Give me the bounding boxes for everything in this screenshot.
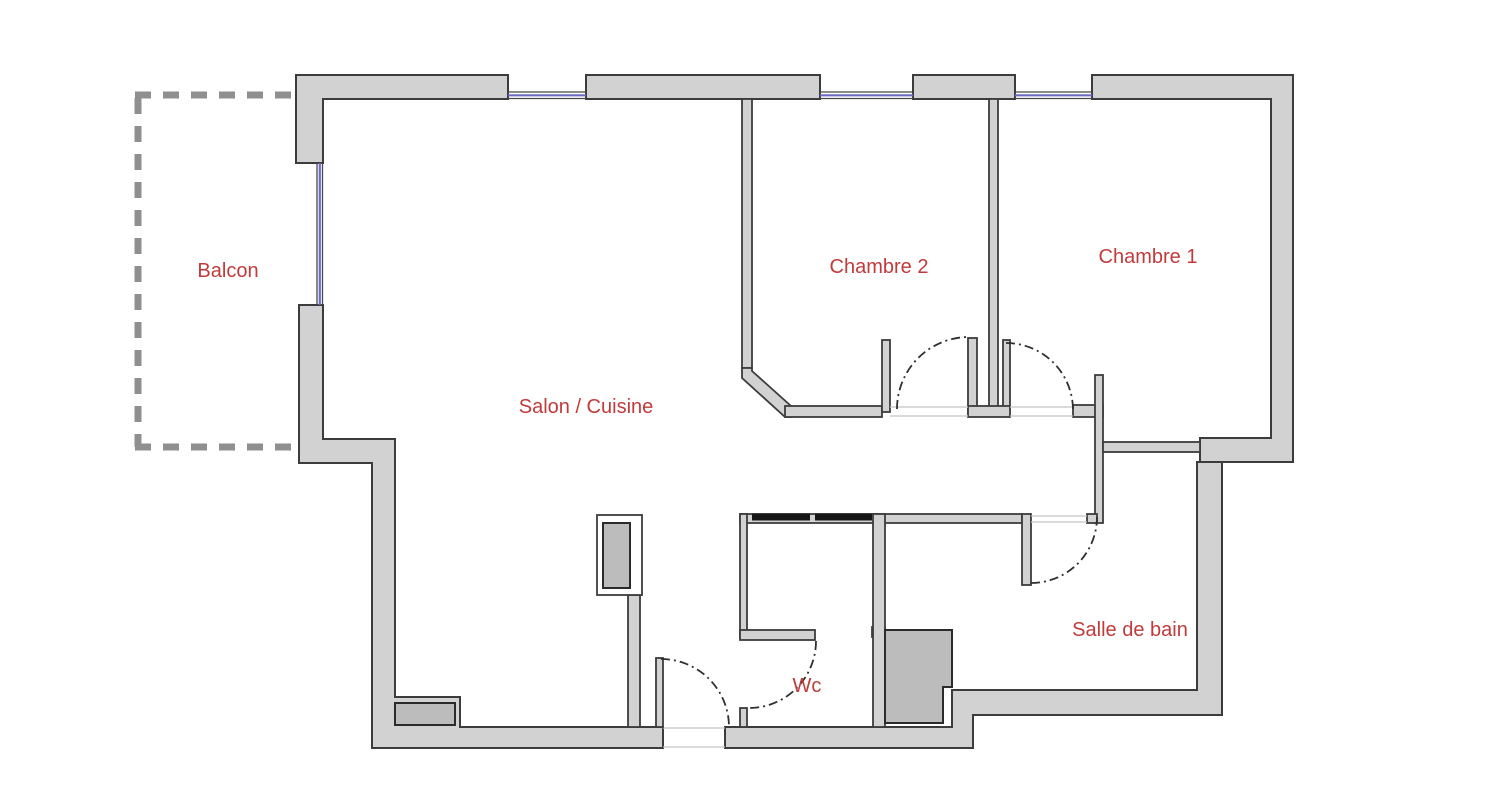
door-jamb-chambre2 — [968, 338, 977, 413]
room-label-wc: Wc — [793, 675, 822, 697]
window-balcony-left — [317, 163, 323, 305]
room-label-chambre-1: Chambre 1 — [1099, 246, 1198, 268]
fixtures — [395, 515, 952, 725]
window-chambre2-top — [820, 92, 913, 99]
door-arc-chambre1 — [1006, 343, 1073, 410]
outer-wall-top-right-section — [1092, 75, 1293, 462]
room-label-balcon: Balcon — [197, 260, 258, 282]
room-label-salon-cuisine: Salon / Cuisine — [519, 396, 654, 418]
wall-wc-inner — [740, 630, 815, 640]
wall-below-pillar — [628, 595, 640, 727]
outer-wall-top-pier-3 — [913, 75, 1015, 99]
wall-chambres-bottom-center — [968, 406, 1010, 417]
wall-salon-chambre2-angled — [742, 368, 791, 417]
radiator — [395, 703, 455, 725]
door-leaf-chambre1 — [1003, 340, 1010, 410]
door-leaf-chambre2 — [882, 340, 890, 412]
wall-hallway-vertical — [1095, 375, 1103, 523]
room-labels: Balcon Salon / Cuisine Chambre 2 Chambre… — [197, 246, 1197, 697]
shower-block — [885, 630, 952, 723]
outer-wall-top-pier-2 — [586, 75, 820, 99]
door-arc-entrance — [661, 659, 729, 727]
door-arc-chambre2 — [897, 337, 969, 409]
window-chambre1-top — [1015, 92, 1092, 99]
outer-wall-top-left-corner — [296, 75, 508, 163]
wall-bathroom-door-foot — [1087, 514, 1097, 523]
door-leaf-entrance — [656, 658, 663, 727]
floor-plan: Balcon Salon / Cuisine Chambre 2 Chambre… — [0, 0, 1502, 800]
wall-chambre1-bottom-right — [1103, 442, 1200, 452]
door-arc-bathroom — [1031, 517, 1097, 583]
room-label-chambre-2: Chambre 2 — [830, 256, 929, 278]
pillar-core — [603, 523, 630, 588]
outer-wall-bathroom-section — [725, 462, 1222, 748]
wall-chambre2-bottom-left — [785, 406, 882, 417]
windows — [317, 92, 1092, 305]
door-jamb-bathroom — [1022, 514, 1031, 585]
wall-salon-chambre2-divider — [742, 99, 752, 368]
wall-wc-right — [873, 514, 885, 727]
wall-wc-left-upper — [740, 514, 747, 638]
room-label-salle-de-bain: Salle de bain — [1072, 619, 1188, 641]
wall-chambre2-chambre1-divider — [989, 99, 998, 410]
window-salon-top — [508, 92, 586, 99]
wall-wc-left-stub — [740, 708, 747, 727]
